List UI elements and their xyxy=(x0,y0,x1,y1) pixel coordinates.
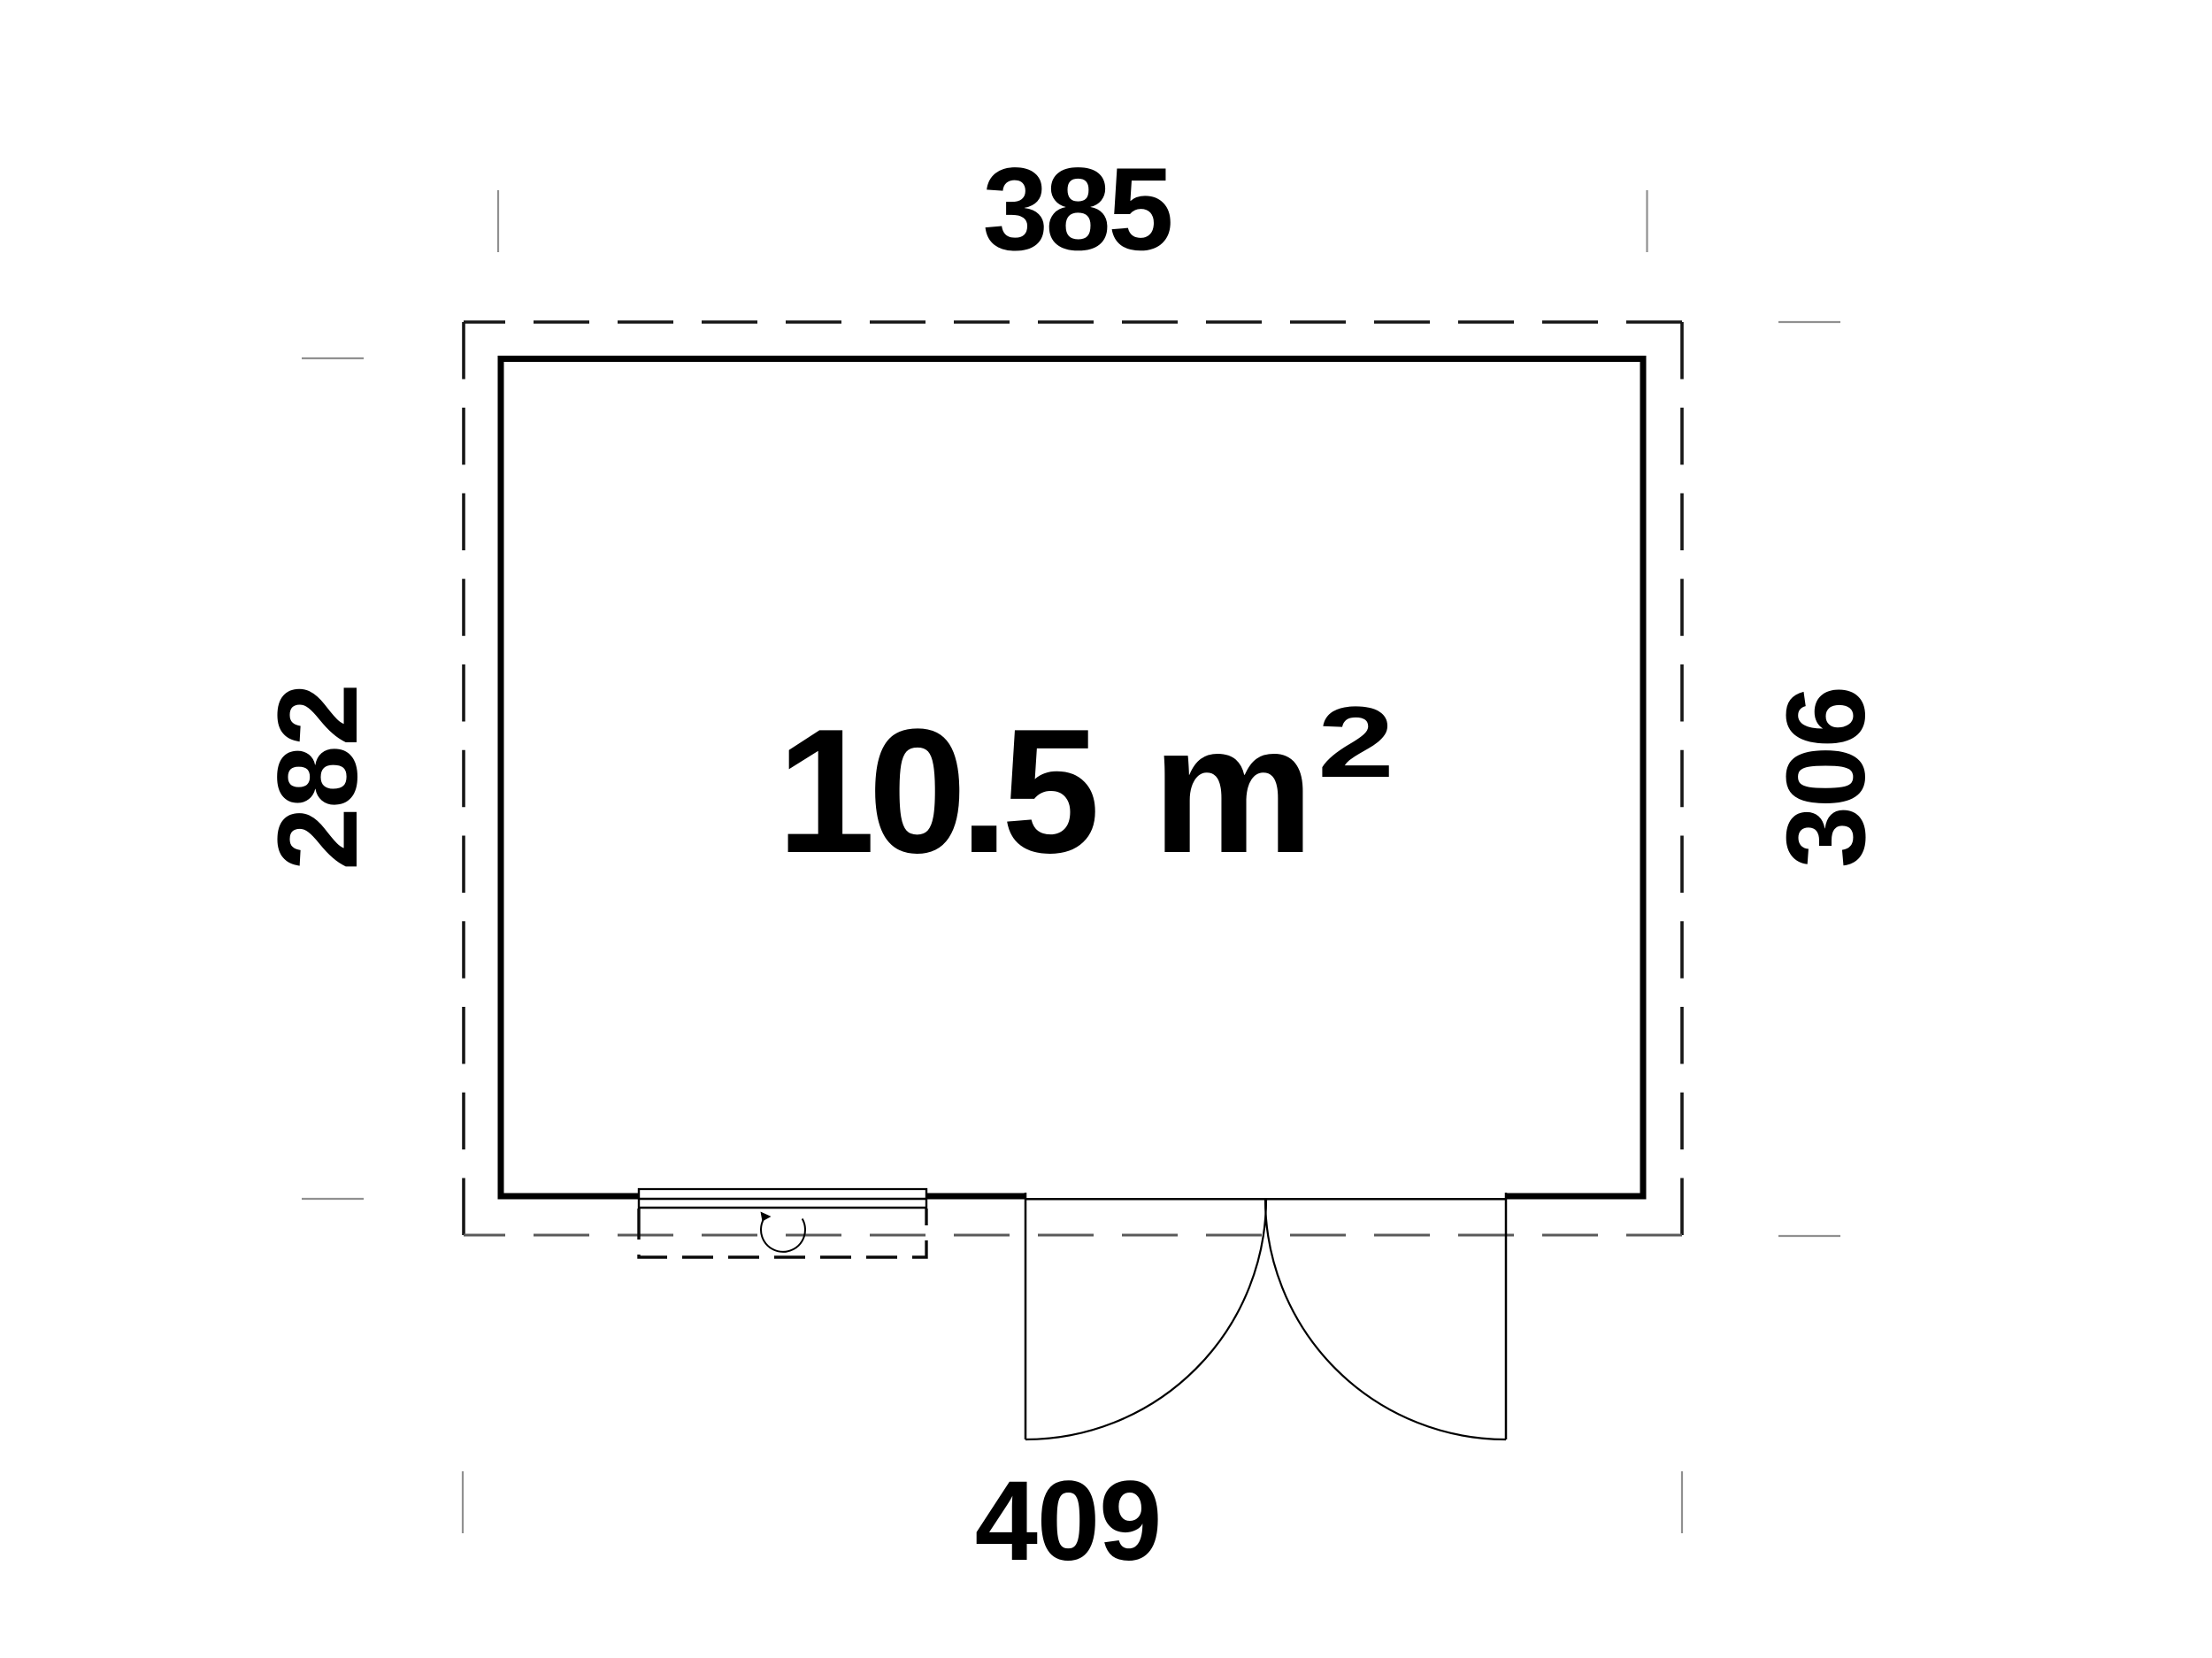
svg-text:282: 282 xyxy=(255,684,381,871)
svg-text:2: 2 xyxy=(1317,687,1394,799)
svg-text:m: m xyxy=(1152,687,1314,891)
svg-text:409: 409 xyxy=(975,1458,1162,1585)
svg-text:306: 306 xyxy=(1763,687,1888,868)
svg-text:385: 385 xyxy=(983,144,1171,275)
svg-text:10.5: 10.5 xyxy=(777,693,1095,890)
